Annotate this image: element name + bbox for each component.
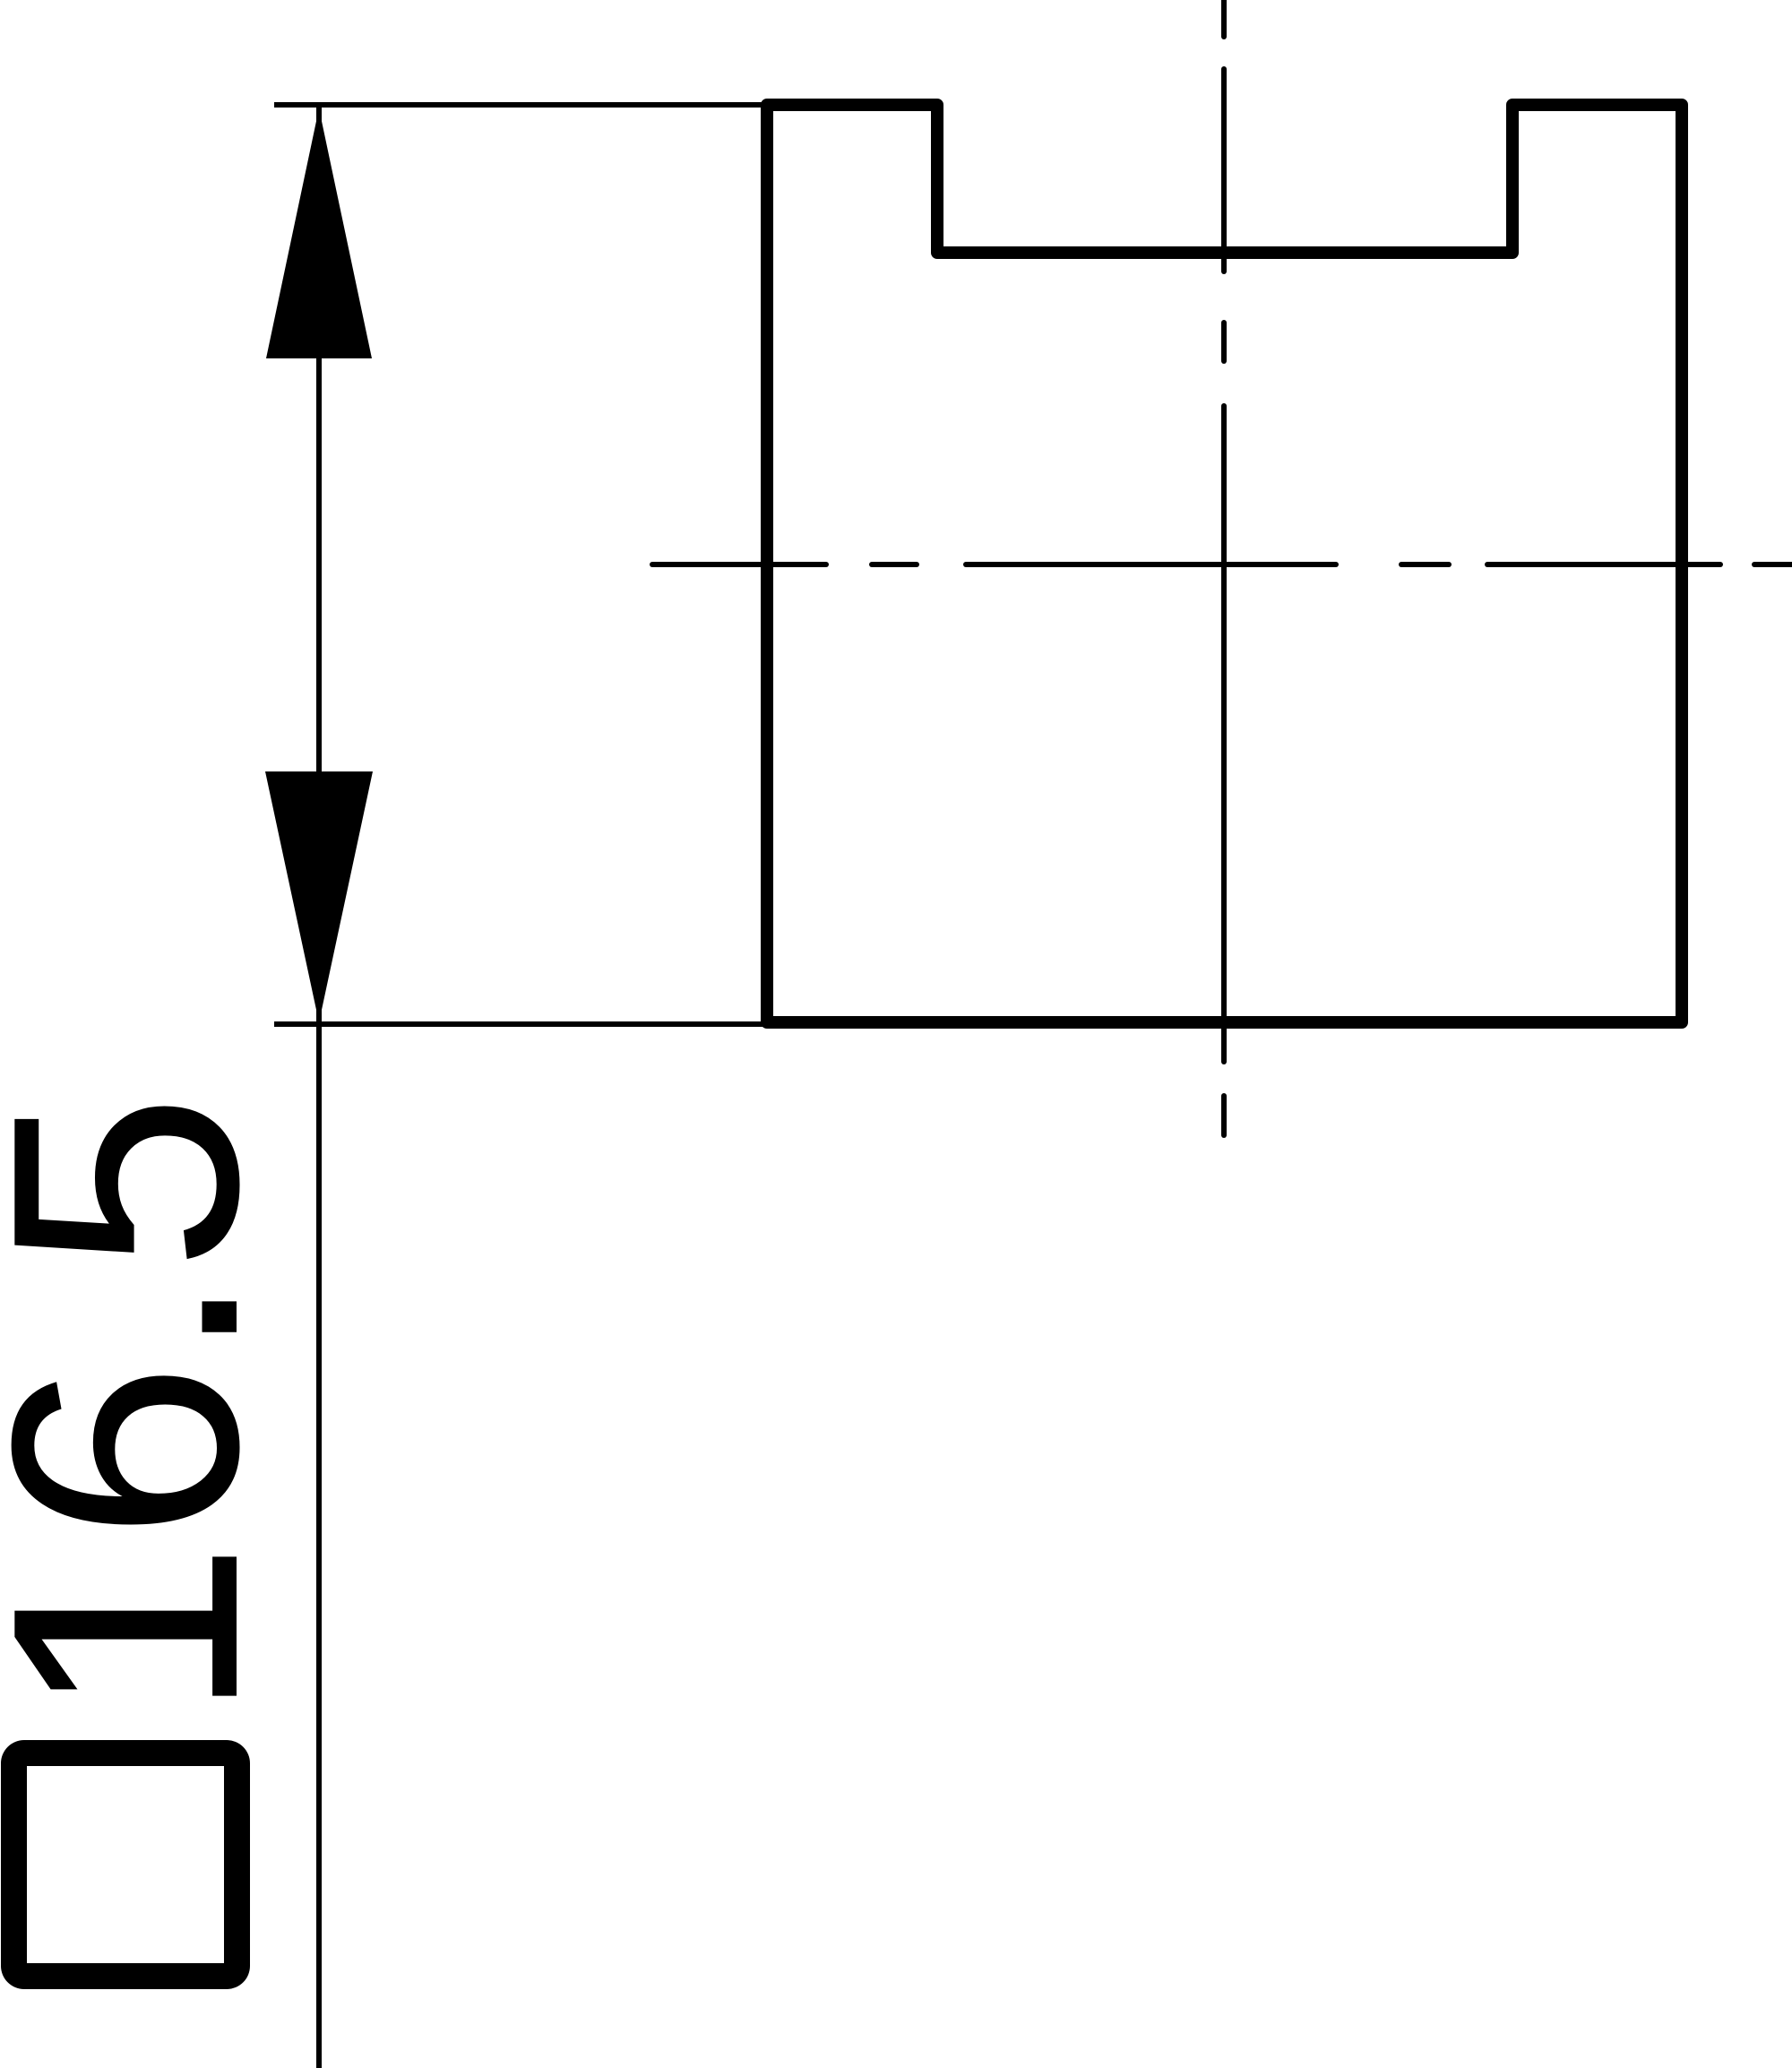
arrowhead-up-icon [266,108,372,358]
dimension-label: 16.5 [0,1095,251,1991]
square-symbol-icon [1,1740,250,1989]
arrowhead-down-icon [265,771,373,1022]
drawing-canvas [0,0,1792,2068]
drawing-page: 16.5 [0,0,1792,2068]
dimension-value: 16.5 [0,1092,251,1720]
dimension-annotation [265,105,772,2068]
